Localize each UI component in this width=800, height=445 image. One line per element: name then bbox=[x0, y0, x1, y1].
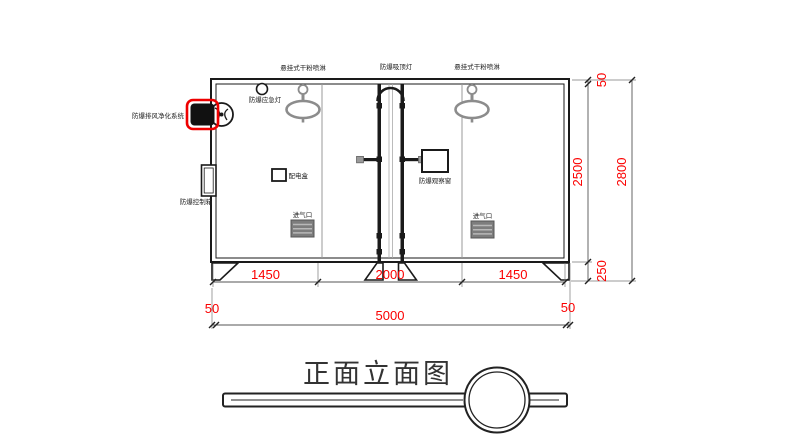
dim-1450-right: 1450 bbox=[499, 267, 528, 282]
section-circle-icon bbox=[465, 368, 530, 433]
air-inlet-right bbox=[471, 221, 494, 238]
exhaust-fan-unit bbox=[187, 100, 233, 129]
distribution-box bbox=[272, 169, 286, 181]
dim-2500: 2500 bbox=[570, 158, 585, 187]
dim-50-top: 50 bbox=[594, 73, 609, 87]
exhaust-purifier-label: 防爆排风净化系统 bbox=[132, 111, 185, 120]
dim-50-right: 50 bbox=[561, 300, 575, 315]
dim-1450-left: 1450 bbox=[251, 267, 280, 282]
dim-250: 250 bbox=[594, 260, 609, 282]
drawing-canvas: 防爆排风净化系统 防爆控制箱 防爆应急灯 配电盒 防爆观察窗 进气口 bbox=[0, 0, 800, 445]
emergency-light-label: 防爆应急灯 bbox=[249, 95, 282, 104]
container-outline bbox=[211, 79, 569, 262]
control-box-label: 防爆控制箱 bbox=[180, 197, 213, 206]
dimension-right: 50 2500 250 2800 bbox=[570, 73, 636, 284]
elevation-drawing-page: 防爆排风净化系统 防爆控制箱 防爆应急灯 配电盒 防爆观察窗 进气口 bbox=[0, 0, 800, 445]
dim-50-left: 50 bbox=[205, 301, 219, 316]
air-inlet-right-label: 进气口 bbox=[473, 211, 493, 220]
dim-5000: 5000 bbox=[376, 308, 405, 323]
air-inlet-left bbox=[291, 220, 314, 237]
dim-2800: 2800 bbox=[614, 158, 629, 187]
control-box bbox=[202, 165, 217, 196]
observation-window-label: 防爆观察窗 bbox=[419, 176, 452, 185]
distribution-box-label: 配电盒 bbox=[289, 171, 309, 180]
dim-2000-center: 2000 bbox=[376, 267, 405, 282]
sprinkler-right-label: 悬挂式干粉喷淋 bbox=[454, 62, 500, 71]
ceiling-light-label: 防爆吸顶灯 bbox=[380, 62, 413, 71]
dimension-bottom-sections: 1450 2000 1450 bbox=[210, 263, 568, 287]
sprinkler-left-label: 悬挂式干粉喷淋 bbox=[280, 63, 326, 72]
drawing-title: 正面立面图 bbox=[303, 359, 453, 389]
air-inlet-left-label: 进气口 bbox=[293, 210, 313, 219]
observation-window bbox=[422, 150, 448, 172]
emergency-light-icon bbox=[257, 84, 268, 95]
